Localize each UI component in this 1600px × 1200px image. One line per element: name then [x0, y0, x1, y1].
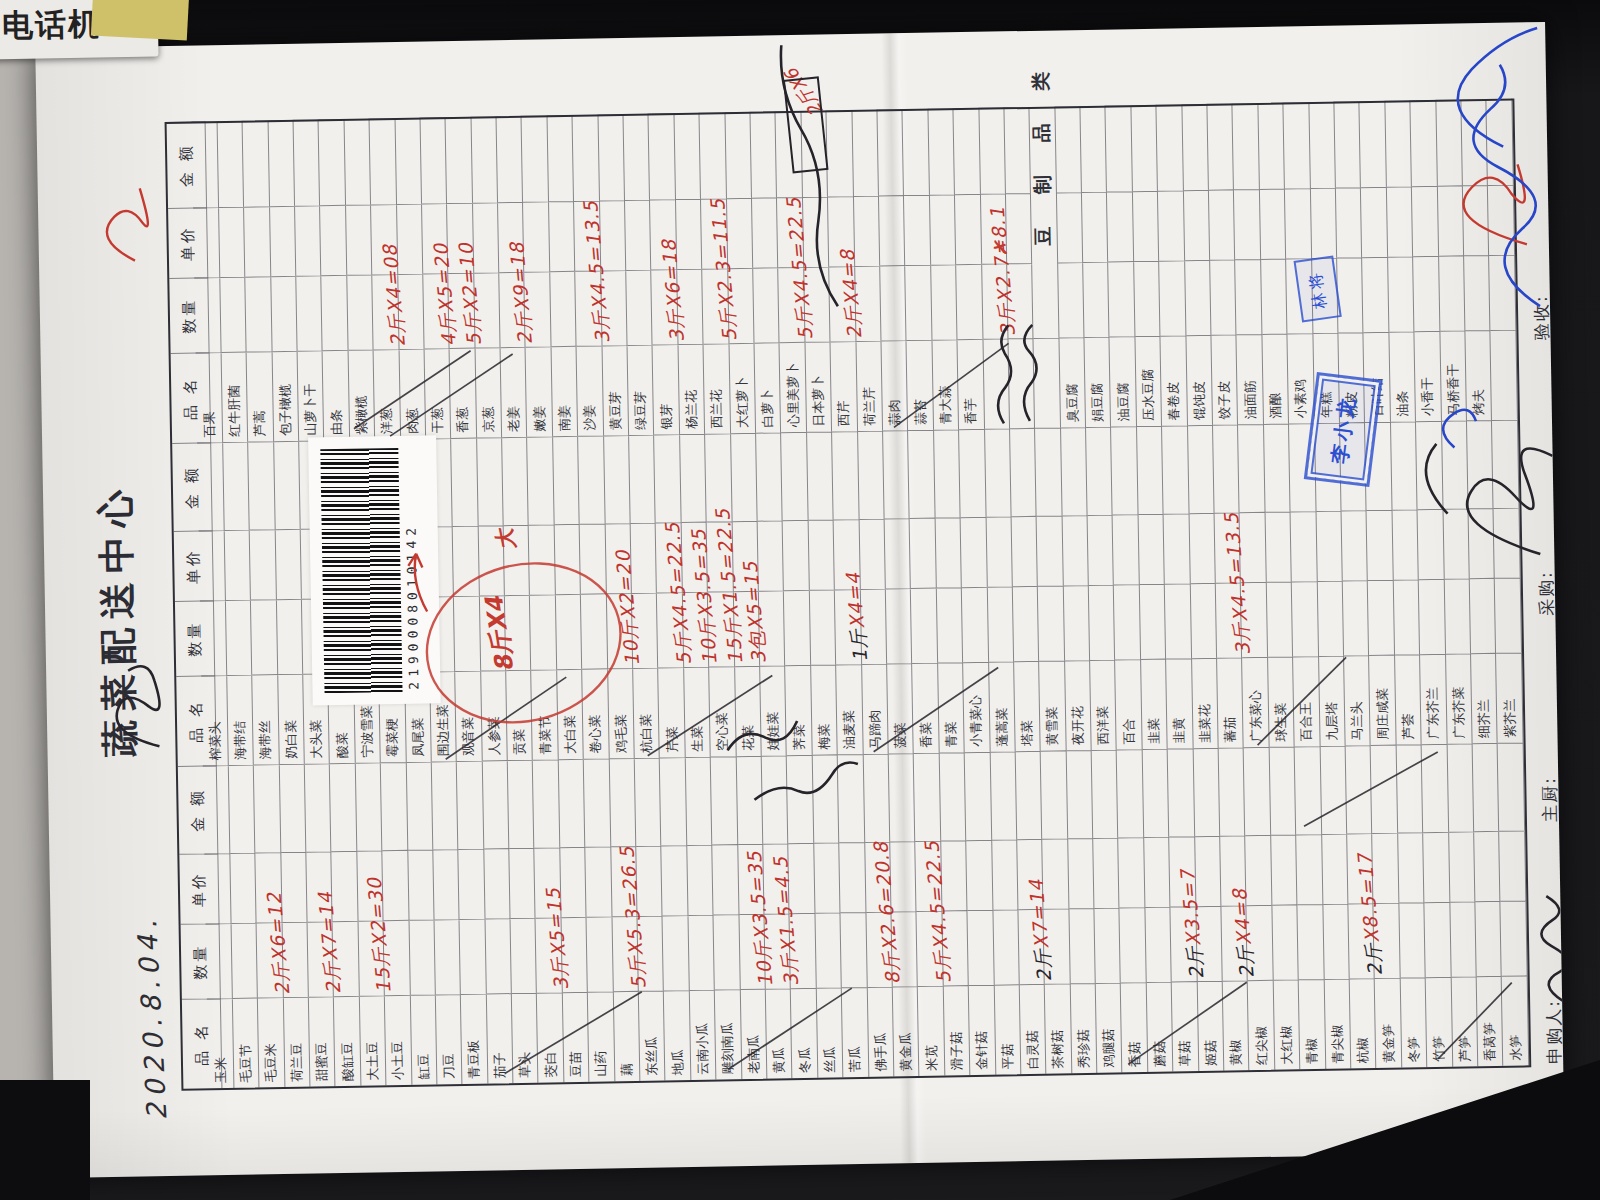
price-cell — [453, 526, 480, 596]
amount-cell — [192, 121, 219, 207]
amount-cell — [432, 761, 459, 849]
item-cell: 香芋 — [958, 339, 985, 429]
item-cell: 广东菜心 — [1242, 657, 1269, 747]
qty-cell — [485, 918, 512, 993]
amount-cell — [248, 441, 275, 529]
qty-cell — [1444, 578, 1471, 653]
qty-cell — [677, 269, 704, 344]
qty-cell — [296, 275, 323, 350]
price-cell — [1209, 189, 1236, 259]
amount-cell — [883, 430, 910, 518]
item-cell: 油麦菜 — [836, 664, 863, 754]
amount-cell — [203, 765, 230, 853]
item-cell: 茭白 — [537, 992, 564, 1082]
item-cell: 春卷皮 — [1161, 335, 1188, 425]
price-cell — [1195, 836, 1222, 906]
price-cell — [1184, 190, 1211, 260]
qty-cell — [1323, 903, 1350, 978]
qty-cell — [733, 591, 760, 666]
qty-cell — [423, 273, 450, 348]
price-cell — [966, 840, 993, 910]
qty-cell — [1470, 578, 1497, 653]
red-flourish-top — [106, 188, 148, 261]
qty-cell — [1038, 585, 1065, 660]
price-cell — [662, 845, 689, 915]
price-cell — [295, 205, 322, 275]
amount-cell — [1346, 745, 1373, 833]
amount-cell — [750, 111, 777, 197]
amount-cell — [1238, 424, 1265, 512]
price-cell — [357, 850, 384, 920]
amount-cell — [1284, 102, 1311, 188]
item-cell: 茶树菇 — [1045, 983, 1072, 1073]
item-cell: 银芽 — [653, 344, 680, 434]
qty-cell — [561, 917, 588, 992]
price-cell — [1468, 508, 1495, 578]
qty-cell — [815, 912, 842, 987]
qty-cell — [612, 916, 639, 991]
amount-cell — [1092, 749, 1119, 837]
item-cell: 茄子 — [487, 993, 514, 1083]
item-cell: 广东芥菜 — [1446, 653, 1473, 743]
item-cell: 老姜 — [501, 347, 528, 437]
item-cell: 京葱 — [475, 347, 502, 437]
price-cell — [783, 520, 810, 590]
qty-cell — [1261, 258, 1288, 333]
amount-cell — [1080, 106, 1107, 192]
amount-cell — [655, 434, 682, 522]
amount-cell — [1391, 421, 1418, 509]
qty-cell — [271, 276, 298, 351]
amount-cell — [508, 760, 535, 848]
barcode-label: 2190008010142 — [308, 435, 441, 705]
item-cell: 海带结 — [227, 675, 254, 765]
amount-cell — [1320, 746, 1347, 834]
amount-cell — [598, 114, 625, 200]
amount-cell — [274, 441, 301, 529]
amount-cell — [1162, 425, 1189, 513]
item-cell: 黄金瓜 — [893, 986, 920, 1076]
qty-cell — [1241, 582, 1268, 657]
price-cell — [422, 203, 449, 273]
price-cell — [611, 846, 638, 916]
item-cell: 滑子菇 — [943, 985, 970, 1075]
price-cell — [1463, 185, 1490, 255]
qty-cell — [1069, 908, 1096, 983]
qty-cell — [1388, 256, 1415, 331]
amount-cell — [1168, 748, 1195, 836]
price-cell — [320, 205, 347, 275]
item-cell: 榨菜头 — [202, 675, 229, 765]
qty-cell — [1343, 580, 1370, 655]
price-cell — [306, 851, 333, 921]
item-cell: 空心菜 — [709, 666, 736, 756]
amount-cell — [553, 436, 580, 524]
qty-cell — [880, 265, 907, 340]
price-cell — [1296, 834, 1323, 904]
item-cell: 丝瓜 — [817, 987, 844, 1077]
item-cell: 杭白菜 — [633, 667, 660, 757]
qty-cell — [1216, 582, 1243, 657]
item-cell: 香菇 — [1121, 982, 1148, 1072]
price-cell — [498, 202, 525, 272]
price-cell — [1260, 188, 1287, 258]
price-cell — [224, 530, 251, 600]
qty-cell — [937, 587, 964, 662]
price-cell — [255, 852, 282, 922]
price-cell — [1133, 191, 1160, 261]
item-cell: 香葱 — [450, 348, 477, 438]
price-cell — [382, 850, 409, 920]
item-cell: 红尖椒 — [1248, 980, 1275, 1070]
qty-cell — [1489, 254, 1516, 329]
amount-cell — [254, 764, 281, 852]
item-cell: 夜开花 — [1065, 660, 1092, 750]
amount-cell — [451, 438, 478, 526]
price-cell — [986, 516, 1013, 586]
qty-cell — [220, 277, 247, 352]
item-cell: 荷兰芹 — [856, 341, 883, 431]
price-cell — [803, 196, 830, 266]
price-cell — [1119, 837, 1146, 907]
qty-cell — [1348, 903, 1375, 978]
amount-cell — [471, 116, 498, 202]
price-cell — [199, 530, 226, 600]
amount-cell — [356, 762, 383, 850]
item-cell: 马蹄肉 — [862, 663, 889, 753]
amount-cell — [1055, 106, 1082, 192]
item-cell: 竹笋 — [1426, 977, 1453, 1067]
amount-cell — [1411, 100, 1438, 186]
item-cell: 水笋 — [1502, 975, 1529, 1065]
qty-cell — [829, 266, 856, 341]
item-cell: 细芥兰 — [1471, 653, 1498, 743]
price-cell — [1271, 834, 1298, 904]
amount-cell — [812, 754, 839, 842]
qty-cell — [200, 600, 227, 675]
amount-cell — [1309, 102, 1336, 188]
qty-cell — [1007, 263, 1034, 338]
price-cell — [1347, 833, 1374, 903]
item-cell: 芦荟 — [1395, 654, 1422, 744]
form-title: 蔬菜配送中心 — [91, 480, 146, 757]
item-cell: 蕃茄 — [1217, 657, 1244, 747]
qty-cell — [790, 913, 817, 988]
amount-cell — [801, 110, 828, 196]
price-cell — [371, 204, 398, 274]
amount-cell — [1269, 746, 1296, 834]
price-cell — [1068, 838, 1095, 908]
price-cell — [1285, 188, 1312, 258]
qty-cell — [855, 266, 882, 341]
item-cell: 刀豆 — [436, 994, 463, 1084]
item-cell: 缸豆 — [410, 994, 437, 1084]
price-cell — [935, 517, 962, 587]
qty-cell — [606, 593, 633, 668]
amount-cell — [1442, 420, 1469, 508]
price-cell — [1499, 830, 1526, 900]
price-cell — [941, 840, 968, 910]
item-cell: 米苋 — [918, 986, 945, 1076]
qty-cell — [688, 915, 715, 990]
qty-cell — [1317, 581, 1344, 656]
price-cell — [885, 518, 912, 588]
amount-cell — [914, 753, 941, 841]
item-cell: 大白菜 — [557, 669, 584, 759]
qty-cell — [886, 588, 913, 663]
amount-cell — [1487, 98, 1514, 184]
price-cell — [535, 847, 562, 917]
amount-cell — [1334, 101, 1361, 187]
amount-cell — [381, 762, 408, 850]
item-cell: 菠菜 — [887, 663, 914, 753]
item-cell: 红牛肝菌 — [221, 352, 248, 442]
qty-cell — [764, 913, 791, 988]
qty-cell — [1165, 583, 1192, 658]
amount-cell — [965, 752, 992, 840]
item-cell: 大土豆 — [360, 995, 387, 1085]
item-cell: 小素鸡 — [1288, 333, 1315, 423]
item-cell: 荠菜 — [786, 665, 813, 755]
amount-cell — [573, 114, 600, 200]
qty-cell — [1450, 901, 1477, 976]
price-cell — [1322, 833, 1349, 903]
price-cell — [636, 845, 663, 915]
qty-cell — [657, 592, 684, 667]
amount-cell — [1131, 105, 1158, 191]
amount-cell — [330, 763, 357, 851]
price-cell — [459, 849, 486, 919]
item-cell: 毛豆米 — [258, 997, 285, 1087]
amount-cell — [1371, 745, 1398, 833]
item-cell: 蒜苔 — [907, 340, 934, 430]
item-cell: 韭菜花 — [1192, 658, 1219, 748]
price-cell — [281, 852, 308, 922]
price-cell — [205, 853, 232, 923]
amount-cell — [731, 433, 758, 521]
item-cell: 紫橄榄 — [348, 349, 375, 439]
item-cell: 观音菜 — [455, 671, 482, 761]
price-cell — [560, 847, 587, 917]
amount-cell — [1010, 428, 1037, 516]
price-cell — [332, 851, 359, 921]
qty-cell — [1368, 580, 1395, 655]
qty-cell — [860, 589, 887, 664]
item-cell: 芦笋 — [1451, 976, 1478, 1066]
qty-cell — [911, 588, 938, 663]
qty-cell — [257, 922, 284, 997]
amount-cell — [279, 764, 306, 852]
item-cell: 山药 — [588, 991, 615, 1081]
item-cell: 嫩姜 — [526, 346, 553, 436]
amount-cell — [939, 752, 966, 840]
amount-cell — [1467, 420, 1494, 508]
price-cell — [1387, 186, 1414, 256]
amount-cell — [1142, 749, 1169, 837]
qty-cell — [1464, 255, 1491, 330]
qty-cell — [449, 273, 476, 348]
item-cell: 西芹 — [831, 341, 858, 431]
price-cell — [1240, 512, 1267, 582]
item-cell: 藕 — [613, 991, 640, 1081]
qty-cell — [1393, 579, 1420, 654]
amount-cell — [1188, 425, 1215, 513]
item-cell: 荷兰豆 — [283, 997, 310, 1087]
qty-cell — [1058, 262, 1085, 337]
item-cell: 黄雪菜 — [1039, 660, 1066, 750]
item-cell: 娟豆腐 — [1085, 337, 1112, 427]
item-cell: 饺子皮 — [1211, 334, 1238, 424]
qty-cell — [632, 592, 659, 667]
price-cell — [580, 523, 607, 593]
price-cell — [890, 841, 917, 911]
price-cell — [1138, 514, 1165, 584]
amount-cell — [1041, 750, 1068, 838]
price-cell — [1164, 513, 1191, 583]
item-cell: 九层塔 — [1319, 656, 1346, 746]
price-cell — [275, 529, 302, 599]
qty-cell — [1145, 907, 1172, 982]
amount-cell — [1137, 426, 1164, 514]
qty-cell — [581, 593, 608, 668]
price-cell — [1291, 511, 1318, 581]
item-cell: 云南小瓜 — [690, 990, 717, 1080]
price-cell — [574, 200, 601, 270]
item-cell: 紫芥兰 — [1496, 652, 1523, 742]
item-cell: 海带丝 — [252, 674, 279, 764]
handwritten-date: 2020.8.04. — [131, 914, 173, 1121]
qty-cell — [1013, 586, 1040, 661]
qty-cell — [739, 914, 766, 989]
price-cell — [473, 202, 500, 272]
amount-cell — [1219, 747, 1246, 835]
price-cell — [1494, 507, 1521, 577]
qty-cell — [1439, 255, 1466, 330]
qty-cell — [282, 922, 309, 997]
photo-stage: 蔬菜配送中心 2020.8.04. 品 名数量单价金 额品 名数量单价金 额品 … — [0, 0, 1600, 1200]
item-cell: 香莴笋 — [1477, 976, 1504, 1066]
item-cell: 冬笋 — [1400, 977, 1427, 1067]
price-cell — [193, 207, 220, 277]
qty-cell — [1190, 583, 1217, 658]
qty-cell — [474, 272, 501, 347]
price-cell — [346, 204, 373, 274]
price-cell — [1158, 190, 1185, 260]
qty-cell — [1362, 257, 1389, 332]
amount-cell — [1016, 751, 1043, 839]
qty-cell — [1159, 260, 1186, 335]
item-cell: 油面筋 — [1237, 334, 1264, 424]
item-cell: 日本萝卜 — [805, 341, 832, 431]
price-cell — [1449, 831, 1476, 901]
price-cell — [955, 194, 982, 264]
amount-cell — [1233, 103, 1260, 189]
qty-cell — [556, 594, 583, 669]
item-cell: 姬菇 — [1197, 981, 1224, 1071]
amount-cell — [985, 428, 1012, 516]
price-cell — [727, 198, 754, 268]
price-cell — [1017, 839, 1044, 909]
qty-cell — [307, 921, 334, 996]
item-cell: 压水豆腐 — [1135, 336, 1162, 426]
amount-cell — [832, 431, 859, 519]
price-cell — [447, 203, 474, 273]
amount-cell — [522, 115, 549, 201]
item-cell: 小香干 — [1415, 331, 1442, 421]
amount-cell — [807, 431, 834, 519]
amount-cell — [624, 114, 651, 200]
price-cell — [763, 843, 790, 913]
amount-cell — [305, 763, 332, 851]
item-cell: 酸缸豆 — [334, 996, 361, 1086]
qty-cell — [1475, 901, 1502, 976]
price-cell — [586, 846, 613, 916]
qty-cell — [652, 269, 679, 344]
item-cell: 百合王 — [1293, 656, 1320, 746]
shengou-signature — [1541, 896, 1565, 1002]
price-cell — [1373, 833, 1400, 903]
yellow-sticky-note — [91, 0, 189, 40]
qty-cell — [575, 270, 602, 345]
qty-cell — [1337, 257, 1364, 332]
amount-cell — [705, 433, 732, 521]
price-cell — [1246, 835, 1273, 905]
amount-cell — [781, 432, 808, 520]
item-cell: 百果 — [196, 352, 223, 442]
qty-cell — [195, 277, 222, 352]
price-cell — [1011, 516, 1038, 586]
price-cell — [1341, 510, 1368, 580]
qty-cell — [525, 271, 552, 346]
qty-cell — [511, 918, 538, 993]
amount-cell — [990, 751, 1017, 839]
item-cell: 娃娃菜 — [760, 665, 787, 755]
item-cell: 毛豆节 — [233, 998, 260, 1088]
item-cell — [1008, 338, 1035, 428]
price-cell — [656, 522, 683, 592]
item-cell: 草菇 — [1172, 981, 1199, 1071]
qty-cell — [1089, 585, 1116, 660]
item-cell: 冬瓜 — [791, 988, 818, 1078]
qty-cell — [942, 910, 969, 985]
qty-cell — [638, 915, 665, 990]
amount-cell — [649, 113, 676, 199]
price-cell — [732, 521, 759, 591]
qty-cell — [835, 589, 862, 664]
qty-cell — [891, 911, 918, 986]
qty-cell — [1044, 908, 1071, 983]
price-cell — [859, 519, 886, 589]
amount-cell — [578, 435, 605, 523]
amount-cell — [928, 108, 955, 194]
amount-cell — [229, 765, 256, 853]
item-cell: 肉葱 — [399, 349, 426, 439]
qty-cell — [708, 591, 735, 666]
item-cell: 沙姜 — [577, 345, 604, 435]
qty-cell — [245, 276, 272, 351]
amount-cell — [1193, 748, 1220, 836]
price-cell — [701, 198, 728, 268]
item-cell: 韭菜 — [1141, 659, 1168, 749]
qty-cell — [358, 920, 385, 995]
item-cell: 绿豆芽 — [628, 345, 655, 435]
qty-cell — [683, 592, 710, 667]
amount-cell — [680, 434, 707, 522]
amount-cell — [1106, 105, 1133, 191]
item-cell: 香菜 — [912, 663, 939, 753]
qty-cell — [987, 586, 1014, 661]
qty-cell — [784, 590, 811, 665]
